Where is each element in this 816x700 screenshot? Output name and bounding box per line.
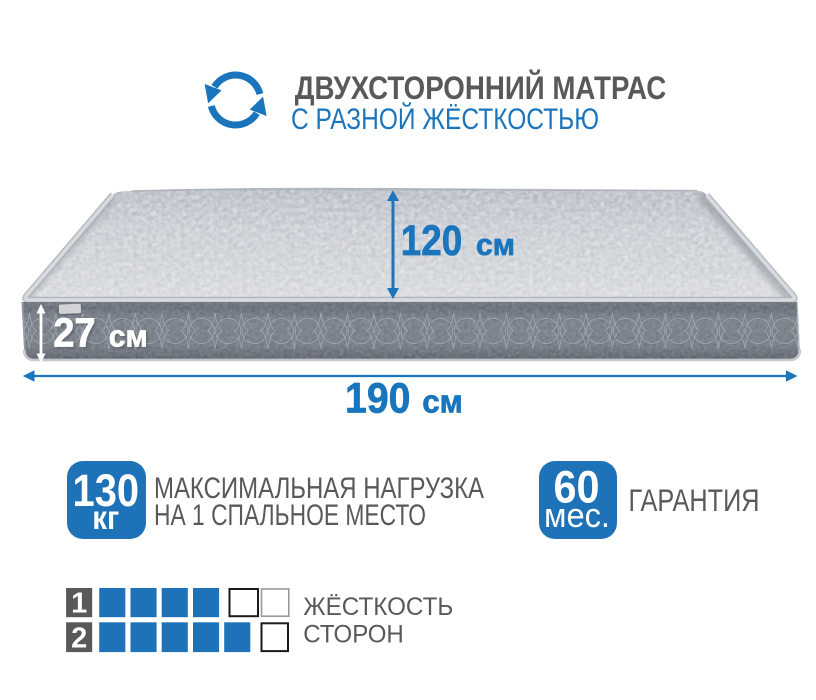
svg-text:ГАРАНТИЯ: ГАРАНТИЯ	[629, 482, 760, 518]
svg-text:ЖЁСТКОСТЬ: ЖЁСТКОСТЬ	[303, 593, 453, 621]
svg-text:1: 1	[71, 588, 87, 620]
svg-text:НА 1 СПАЛЬНОЕ МЕСТО: НА 1 СПАЛЬНОЕ МЕСТО	[154, 499, 426, 532]
svg-text:ДВУХСТОРОННИЙ МАТРАС: ДВУХСТОРОННИЙ МАТРАС	[295, 70, 667, 106]
svg-text:С РАЗНОЙ ЖЁСТКОСТЬЮ: С РАЗНОЙ ЖЁСТКОСТЬЮ	[291, 102, 599, 136]
svg-text:120: 120	[401, 218, 463, 265]
svg-text:27: 27	[53, 310, 95, 356]
svg-text:СТОРОН: СТОРОН	[303, 621, 404, 649]
svg-text:2: 2	[71, 622, 87, 654]
svg-text:см: см	[422, 383, 463, 419]
svg-text:см: см	[109, 319, 148, 354]
svg-text:190: 190	[345, 374, 411, 422]
svg-text:кг: кг	[92, 499, 119, 536]
svg-text:мес.: мес.	[544, 497, 610, 535]
svg-text:см: см	[476, 227, 515, 262]
